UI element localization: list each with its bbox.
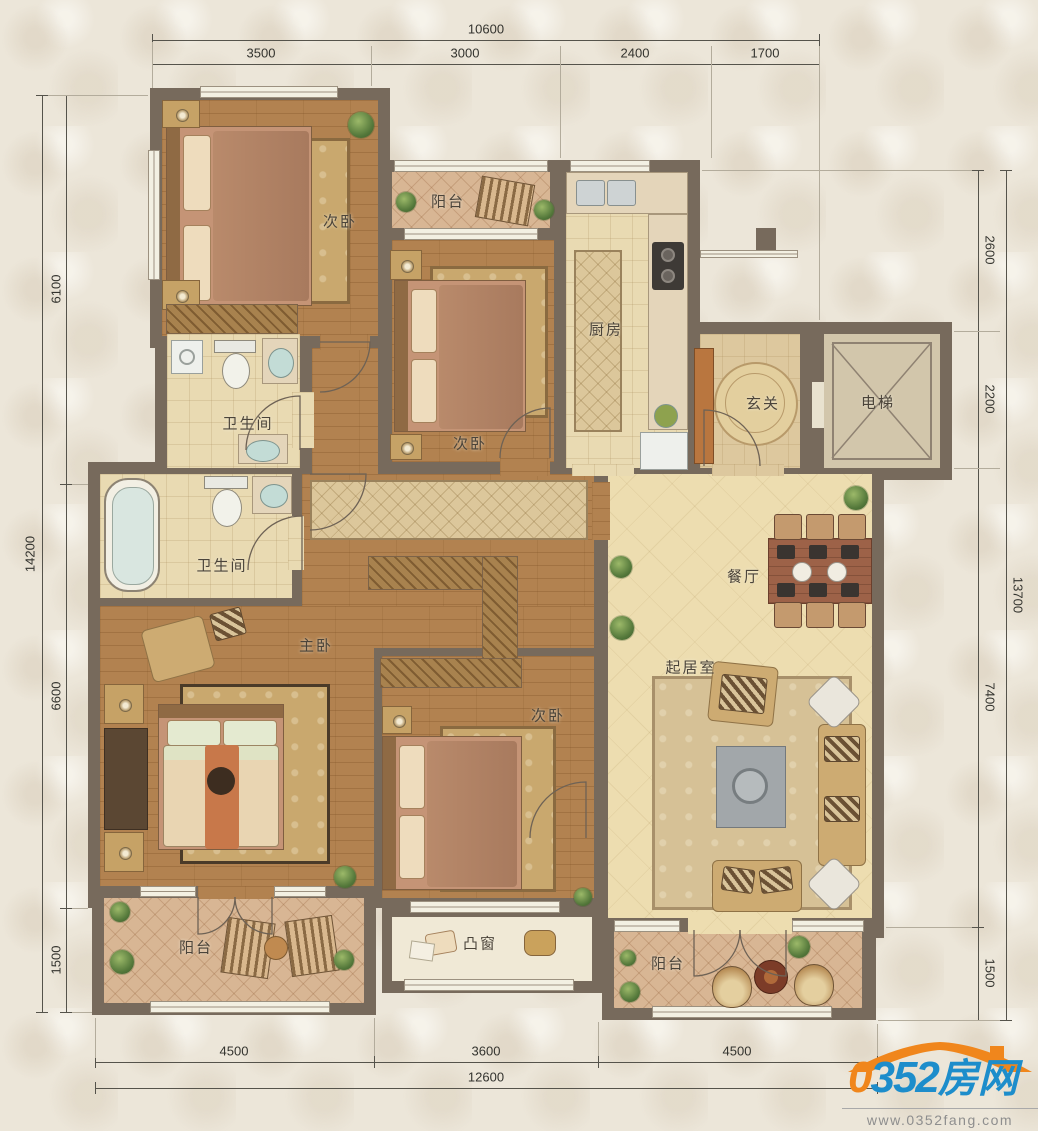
dim-label: 6600 <box>50 682 63 711</box>
extension-line <box>598 1022 599 1056</box>
dim-line-left-segments <box>66 95 67 1013</box>
room-label-balcony-bl: 阳台 <box>179 941 213 956</box>
room-label-dining: 餐厅 <box>727 570 761 585</box>
dim-label: 4500 <box>220 1045 249 1058</box>
plant <box>620 950 636 966</box>
room-label-master-bedroom: 主卧 <box>299 639 333 654</box>
dim-label: 2600 <box>984 236 997 265</box>
dim-label: 3500 <box>247 47 276 60</box>
extension-line <box>48 95 148 96</box>
coffee-table-decor <box>732 768 768 804</box>
dining-chair <box>806 514 834 540</box>
door-gap <box>288 516 304 570</box>
room-label-bedroom-bottom: 次卧 <box>531 709 565 724</box>
dim-label: 14200 <box>24 536 37 572</box>
plant <box>610 556 632 578</box>
dim-tick <box>36 1012 48 1013</box>
dresser <box>104 728 148 830</box>
bench <box>475 176 535 227</box>
lounge-chair <box>284 915 339 977</box>
dining-chair <box>774 602 802 628</box>
dining-chair <box>806 602 834 628</box>
door-gap <box>500 458 550 476</box>
dim-label: 2200 <box>984 385 997 414</box>
logo-website: www.0352fang.com <box>842 1112 1038 1128</box>
door-gap <box>592 482 610 540</box>
balcony-railing <box>394 160 548 172</box>
balcony-railing <box>652 1006 832 1018</box>
window <box>792 920 864 932</box>
dim-line-right-segments <box>978 170 979 1020</box>
door-gap <box>198 886 274 899</box>
extension-line <box>95 1018 96 1058</box>
extension-line <box>374 1018 375 1056</box>
wash-basin <box>260 484 288 508</box>
dim-label: 1700 <box>751 47 780 60</box>
plant <box>334 866 356 888</box>
plant <box>334 950 354 970</box>
room-label-bay-window: 凸窗 <box>463 937 497 952</box>
stove-icon <box>652 242 684 290</box>
dim-tick <box>819 34 820 46</box>
dim-tick <box>1000 170 1012 171</box>
extension-line <box>152 42 153 88</box>
corridor-runner-rug <box>310 480 588 540</box>
extension-line <box>886 927 972 928</box>
vessel-sink <box>654 404 678 428</box>
extension-line <box>72 1012 92 1013</box>
bed <box>382 736 522 890</box>
room-label-balcony-top: 阳台 <box>431 195 465 210</box>
toilet-bowl <box>222 353 250 389</box>
dim-tick <box>1000 1020 1012 1021</box>
dim-tick <box>972 170 984 171</box>
dining-chair <box>838 514 866 540</box>
window <box>404 228 538 240</box>
throw-pillow <box>720 866 755 894</box>
basket <box>524 930 556 956</box>
room-label-bathroom-lower: 卫生间 <box>196 559 247 574</box>
door-gap <box>688 912 792 934</box>
extension-line <box>371 46 372 86</box>
dim-tick <box>95 1082 96 1094</box>
nightstand <box>382 706 412 734</box>
dim-tick <box>598 1056 599 1068</box>
shoe-cabinet <box>694 348 714 464</box>
extension-line <box>702 170 972 171</box>
logo: 0352房网 <box>848 1056 1038 1100</box>
dim-tick <box>374 1056 375 1068</box>
sofa-cushion <box>824 736 860 762</box>
plant <box>396 192 416 212</box>
dim-line-bottom-total <box>95 1088 877 1089</box>
dim-line-bottom-segments <box>95 1062 877 1063</box>
dim-line-top-total <box>152 40 820 41</box>
nightstand <box>104 832 144 872</box>
extension-line <box>72 908 88 909</box>
plant <box>348 112 374 138</box>
washing-machine <box>171 340 203 374</box>
bed <box>166 126 312 306</box>
room-label-living: 起居室 <box>665 661 716 676</box>
round-chair <box>794 964 834 1006</box>
kitchen-runner-rug <box>574 250 622 432</box>
plant <box>610 616 634 640</box>
dim-line-top-segments <box>152 64 820 65</box>
extension-line <box>819 46 820 320</box>
dim-tick <box>60 908 72 909</box>
side-table <box>264 936 288 960</box>
dim-label: 1500 <box>50 946 63 975</box>
floor-plan-page: 次卧 阳台 次卧 厨房 玄关 电梯 卫生间 卫生间 主卧 餐厅 起居室 次卧 阳… <box>0 0 1038 1131</box>
dim-tick <box>972 927 984 928</box>
dining-chair <box>774 514 802 540</box>
plant <box>110 902 130 922</box>
extension-line <box>954 468 1000 469</box>
extension-line <box>72 484 88 485</box>
dim-label: 3600 <box>472 1045 501 1058</box>
wardrobe <box>166 304 298 334</box>
window <box>274 886 326 897</box>
refrigerator <box>640 432 688 470</box>
nightstand <box>390 434 422 460</box>
dim-tick <box>60 484 72 485</box>
room-label-foyer: 玄关 <box>746 397 780 412</box>
dining-table <box>768 538 872 604</box>
door-gap <box>572 464 634 476</box>
wardrobe <box>380 658 522 688</box>
dining-chair <box>838 602 866 628</box>
dim-label: 10600 <box>468 23 504 36</box>
toilet-bowl <box>212 489 242 527</box>
wash-basin <box>246 440 280 462</box>
kitchen-sink <box>607 180 636 206</box>
bathtub-basin <box>112 487 154 585</box>
nightstand <box>390 250 422 280</box>
window <box>570 160 650 172</box>
toilet <box>214 340 256 353</box>
logo-cn: 房网 <box>938 1057 1018 1101</box>
window <box>140 886 196 897</box>
logo-divider <box>842 1108 1038 1109</box>
balcony-railing <box>150 1001 330 1013</box>
dim-label: 7400 <box>984 683 997 712</box>
room-label-bathroom-upper: 卫生间 <box>222 417 273 432</box>
nightstand <box>104 684 144 724</box>
wardrobe <box>482 556 518 672</box>
plant <box>574 888 592 906</box>
dim-label: 12600 <box>468 1071 504 1084</box>
throw-pillow <box>758 866 793 894</box>
logo-number: 352 <box>870 1053 937 1102</box>
armchair-cushion <box>718 674 768 715</box>
extension-line <box>954 331 1000 332</box>
round-table <box>754 960 788 994</box>
kitchen-sink <box>576 180 605 206</box>
dim-line-right-total <box>1006 170 1007 1020</box>
dim-label: 6100 <box>50 275 63 304</box>
plant <box>534 200 554 220</box>
window <box>200 86 338 98</box>
sofa-cushion <box>824 796 860 822</box>
plant <box>788 936 810 958</box>
floor-hallway <box>312 348 378 478</box>
plant <box>110 950 134 974</box>
bed <box>394 280 526 432</box>
plant <box>620 982 640 1002</box>
dim-line-left-total <box>42 95 43 1013</box>
book <box>409 940 435 961</box>
dim-label: 3000 <box>451 47 480 60</box>
dim-label: 1500 <box>984 959 997 988</box>
bay-window-glass <box>404 979 574 991</box>
dim-tick <box>60 1012 72 1013</box>
toilet <box>204 476 248 489</box>
extension-line <box>878 1020 1000 1021</box>
door-gap <box>292 392 314 448</box>
plant <box>844 486 868 510</box>
bed-master <box>158 704 284 850</box>
room-label-elevator: 电梯 <box>861 396 895 411</box>
dim-label: 4500 <box>723 1045 752 1058</box>
extension-line <box>560 46 561 158</box>
door-gap <box>320 334 370 350</box>
room-label-bedroom-top-left: 次卧 <box>323 215 357 230</box>
room-label-bedroom-middle: 次卧 <box>453 437 487 452</box>
logo-zero: 0 <box>848 1053 870 1102</box>
dim-label: 13700 <box>1012 577 1025 613</box>
extension-line <box>711 46 712 158</box>
room-label-kitchen: 厨房 <box>589 323 623 338</box>
dim-tick <box>36 95 48 96</box>
room-label-balcony-br: 阳台 <box>651 957 685 972</box>
round-chair <box>712 966 752 1008</box>
wash-basin <box>268 348 294 378</box>
window <box>614 920 680 932</box>
window <box>410 901 560 913</box>
dim-label: 2400 <box>621 47 650 60</box>
nightstand <box>162 100 200 128</box>
window <box>148 150 160 280</box>
railing <box>700 250 798 258</box>
elevator-door <box>812 382 824 428</box>
door-gap <box>712 464 784 476</box>
